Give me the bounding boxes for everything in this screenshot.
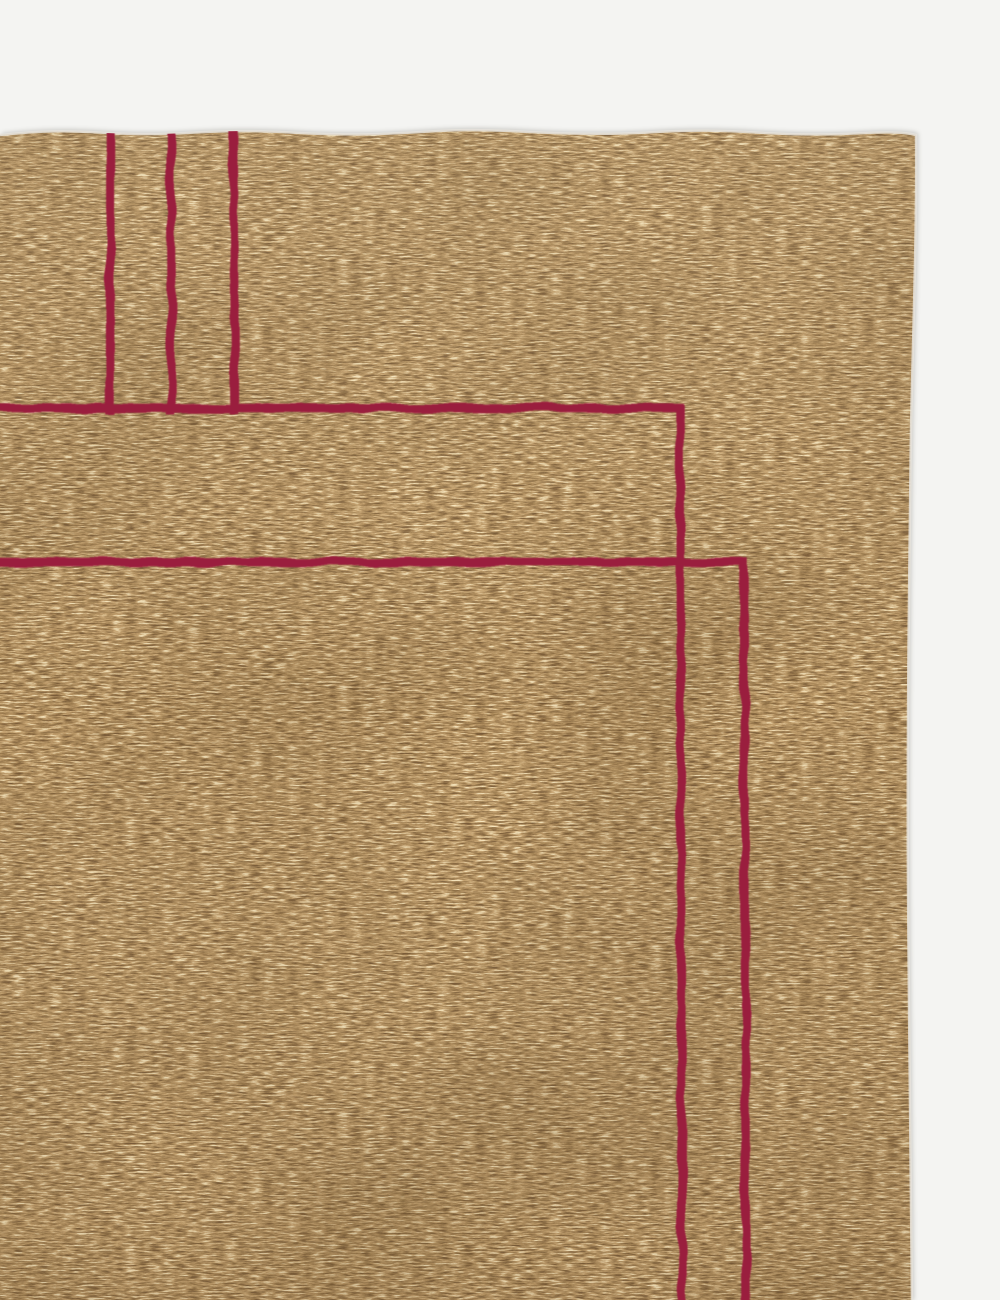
rug-lighting-gradient [0,130,916,1300]
product-photo [0,0,1000,1300]
accent-line-vertical-1 [110,122,111,414]
accent-line-vertical-3 [233,122,235,414]
rug-photo [0,0,1000,1300]
accent-line-vertical-2 [171,122,172,414]
